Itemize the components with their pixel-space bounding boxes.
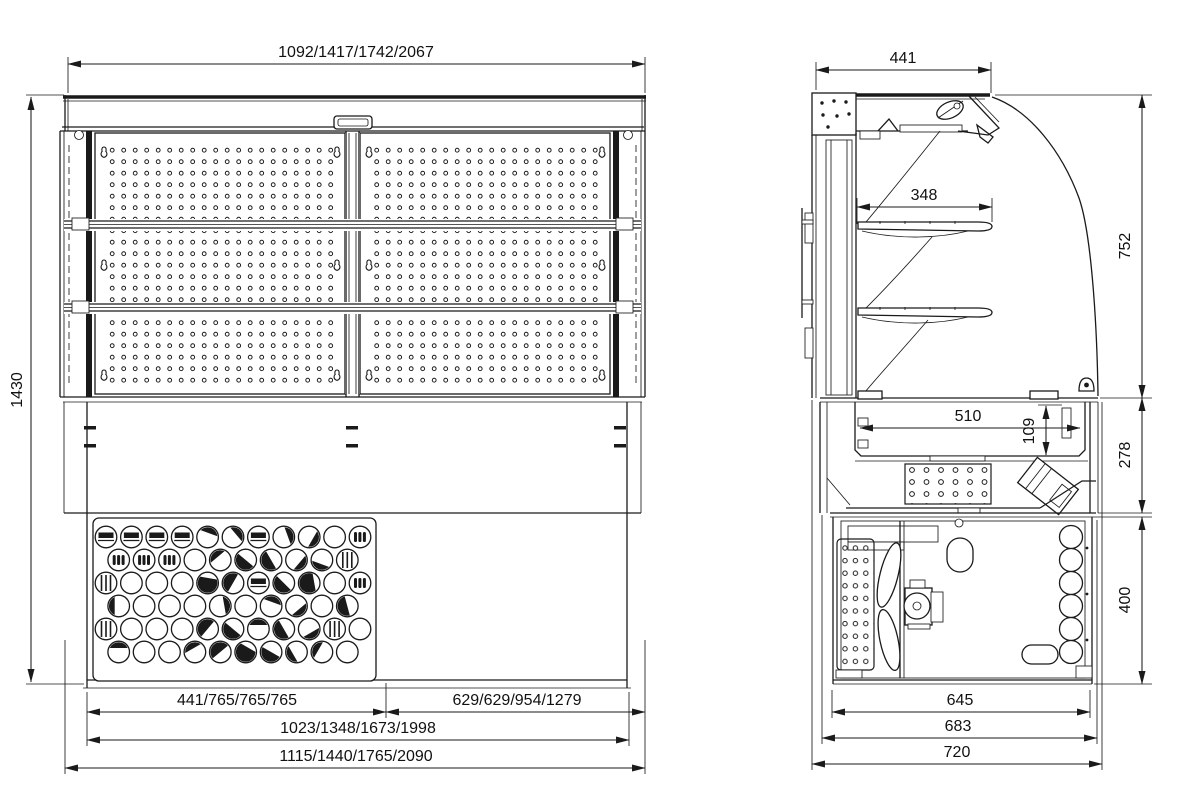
evaporator-plate	[905, 464, 991, 504]
dim-front-top-width: 1092/1417/1742/2067	[278, 44, 434, 61]
side-view: 441 348 752 278 400 510 109 645 683 720	[802, 50, 1152, 770]
dim-front-bottom-overall: 1115/1440/1765/2090	[279, 748, 432, 765]
shelf-rail-2	[64, 301, 641, 314]
vent-grille	[93, 518, 376, 681]
dim-side-top-depth: 441	[890, 50, 917, 67]
pegboard-left	[95, 133, 345, 394]
dim-well-width: 510	[955, 408, 982, 425]
dim-well-height: 278	[1117, 442, 1134, 469]
machinery-base	[830, 513, 1096, 684]
roller-end-cap-left	[75, 131, 84, 140]
roller-blind-handle	[334, 116, 372, 129]
compressor-vent-holes	[1060, 526, 1089, 664]
dimension-drawing: 1092/1417/1742/2067 1430 441/765/765/765…	[0, 0, 1192, 798]
roller-end-cap-right	[624, 131, 633, 140]
cable-slot	[1022, 645, 1058, 664]
air-guides	[860, 131, 940, 398]
drawing-canvas: 1092/1417/1742/2067 1430 441/765/765/765…	[0, 0, 1192, 798]
dim-base-height: 400	[1117, 587, 1134, 614]
well-fan-unit	[1018, 457, 1079, 514]
dim-front-bottom-mid: 1023/1348/1673/1998	[280, 720, 436, 737]
center-mullion	[345, 131, 360, 397]
machinery-grille	[837, 539, 874, 670]
fan-motor	[904, 580, 943, 629]
pegboard-right	[360, 133, 610, 394]
dim-front-height: 1430	[9, 372, 26, 408]
side-canopy	[812, 93, 999, 143]
dim-front-bottom-left: 441/765/765/765	[177, 692, 297, 709]
counter-body	[60, 397, 645, 513]
shelf-upper	[858, 221, 992, 237]
dim-front-bottom-right: 629/629/954/1279	[452, 692, 581, 709]
dim-well-depth: 109	[1021, 418, 1038, 445]
dim-bottom-inner: 645	[947, 692, 974, 709]
glass-foot-clip	[1079, 378, 1094, 391]
glass-front	[992, 97, 1098, 396]
condenser-fan	[872, 541, 905, 672]
shelf-rail-1	[64, 218, 641, 231]
dim-bottom-overall: 720	[944, 744, 971, 761]
shelf-lower	[858, 307, 992, 323]
drain-slot	[947, 538, 973, 572]
dim-shelf-depth: 348	[911, 187, 938, 204]
front-view: 1092/1417/1742/2067 1430 441/765/765/765…	[9, 44, 646, 774]
dim-upper-height: 752	[1117, 233, 1134, 260]
back-wall	[802, 133, 856, 398]
dim-bottom-mid: 683	[945, 718, 972, 735]
